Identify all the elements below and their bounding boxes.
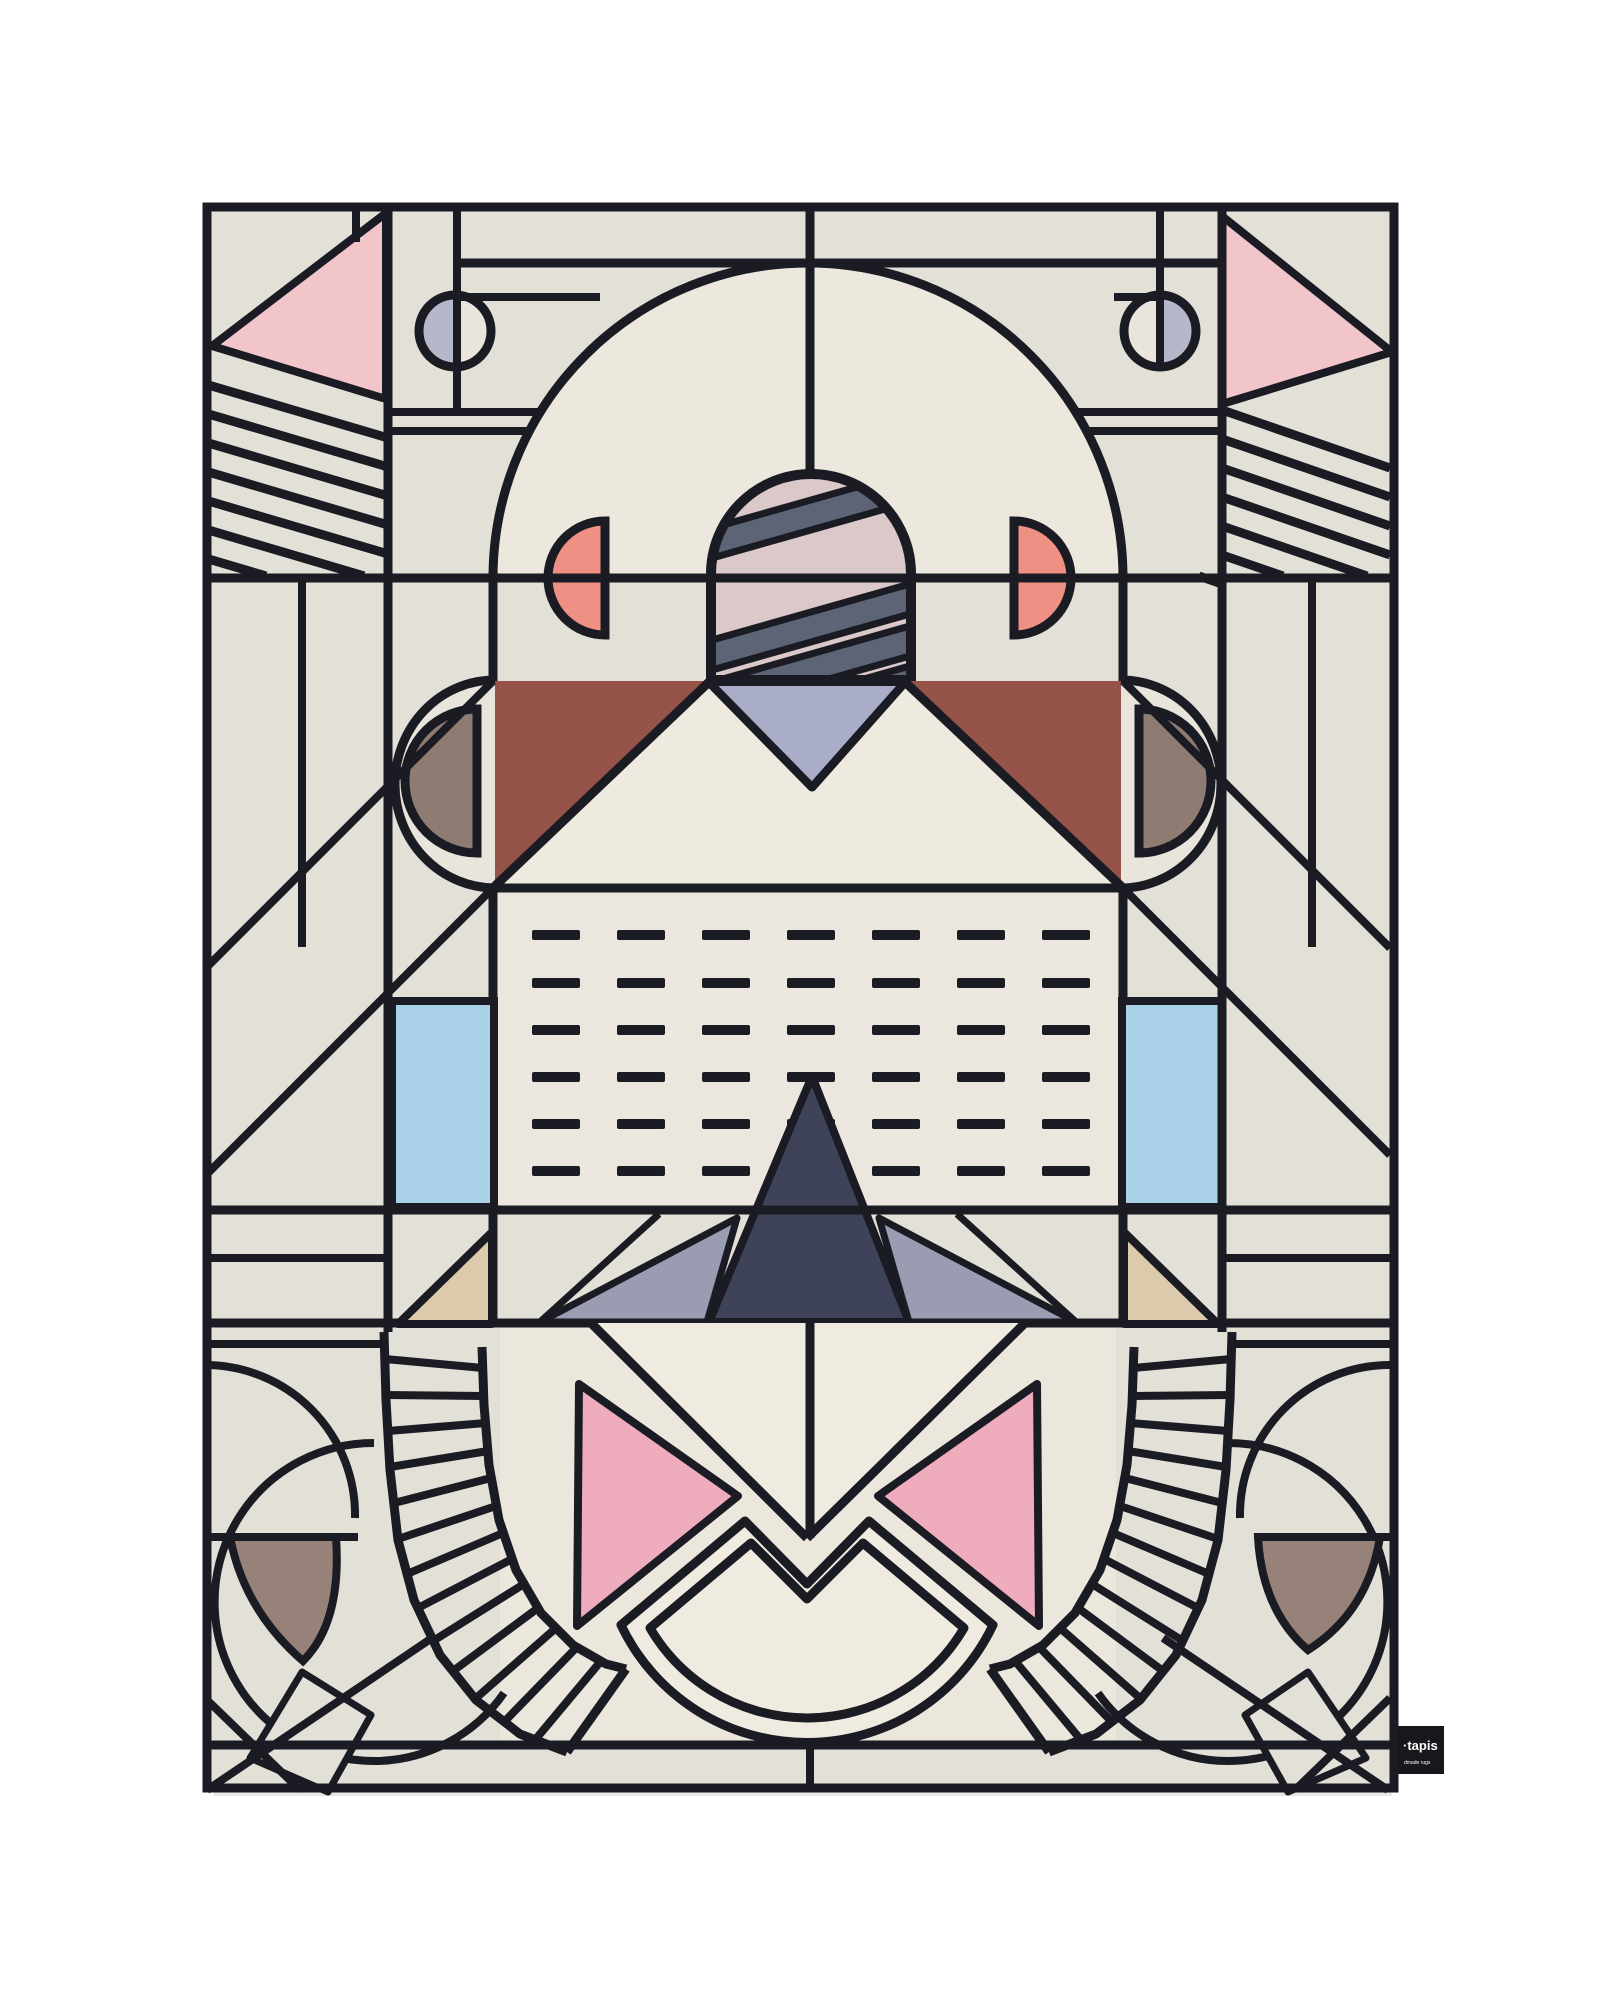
svg-text:·tapis: ·tapis xyxy=(1403,1738,1438,1753)
svg-text:dmade rugs: dmade rugs xyxy=(1404,1760,1431,1766)
